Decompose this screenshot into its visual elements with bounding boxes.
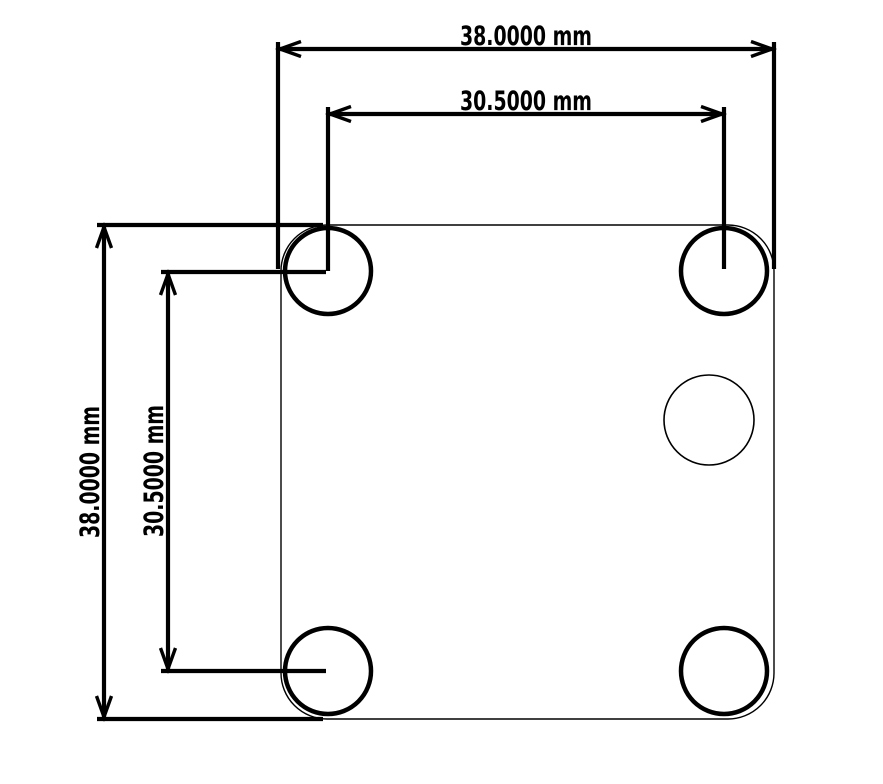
plate-outline	[281, 225, 774, 719]
drawing-canvas: 38.0000 mm 30.5000 mm 38.0000 mm	[0, 0, 883, 784]
center-hole	[664, 375, 754, 465]
dimension-label: 30.5000 mm	[460, 86, 592, 117]
dimension-overall-width: 38.0000 mm	[278, 21, 774, 269]
engineering-drawing: 38.0000 mm 30.5000 mm 38.0000 mm	[0, 0, 883, 784]
dimension-label: 38.0000 mm	[75, 406, 106, 538]
mounting-hole-bottom-right	[681, 628, 767, 714]
dimension-label: 38.0000 mm	[460, 21, 592, 52]
dimension-hole-spacing-height: 30.5000 mm	[139, 272, 326, 671]
dimension-hole-spacing-width: 30.5000 mm	[328, 86, 724, 271]
dimension-label: 30.5000 mm	[139, 405, 170, 537]
dimension-overall-height: 38.0000 mm	[75, 225, 323, 719]
